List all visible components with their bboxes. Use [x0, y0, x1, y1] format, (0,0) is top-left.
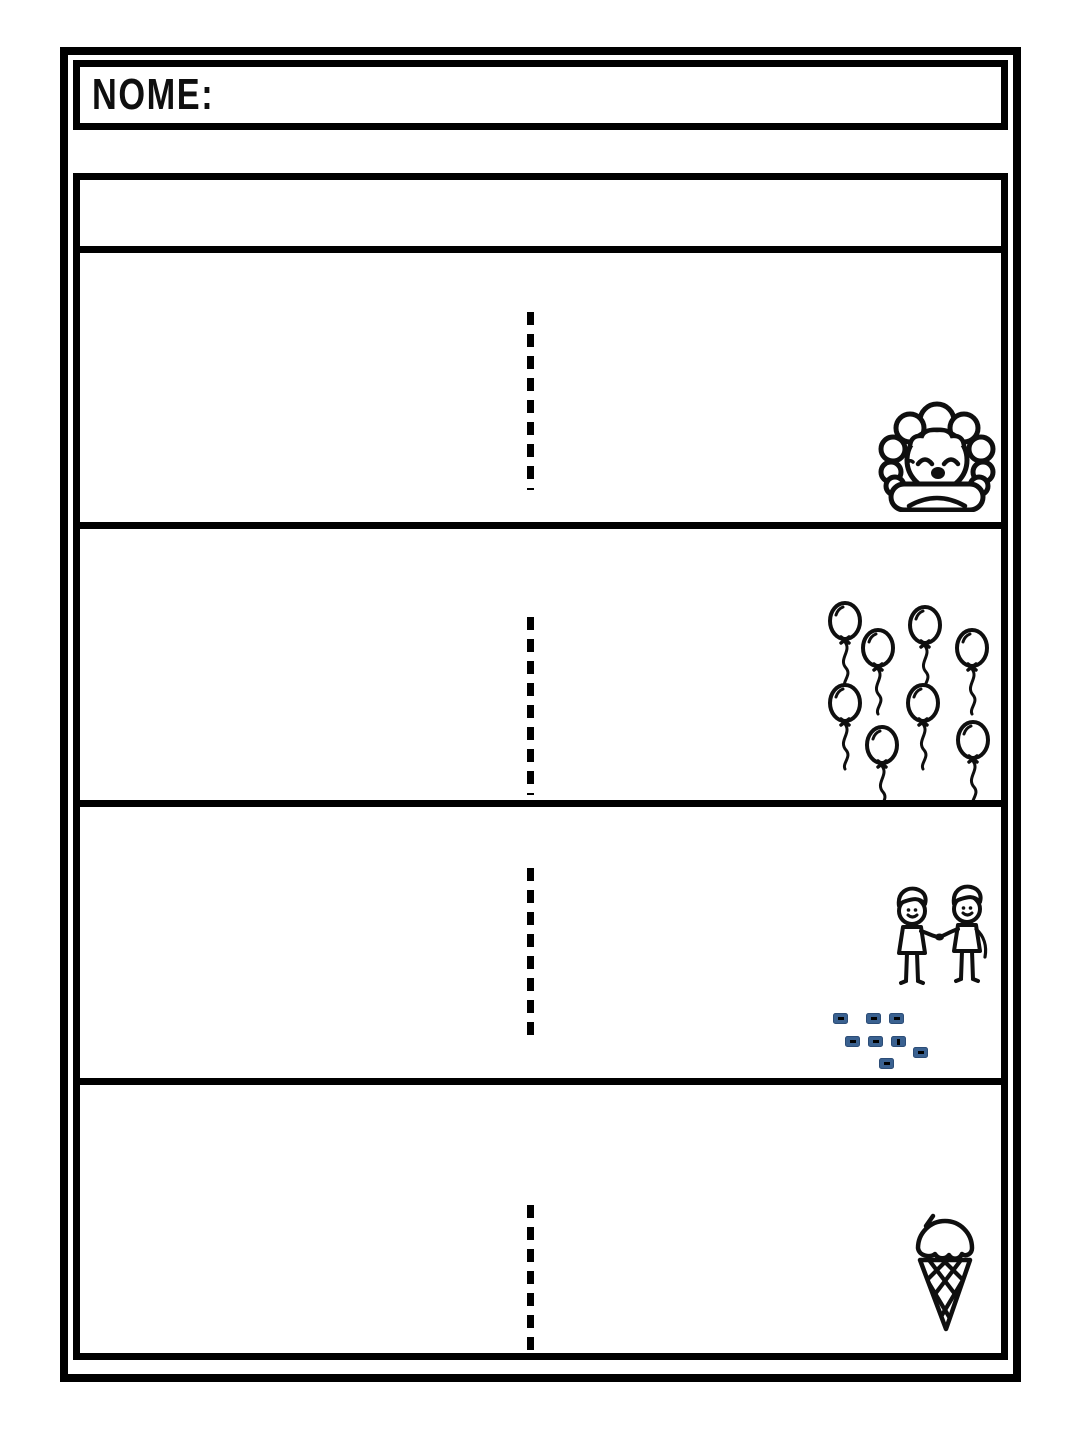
page-border-frame: NOME:	[60, 47, 1021, 1382]
exercise-row-balloons	[80, 522, 1001, 800]
name-field[interactable]: NOME:	[73, 60, 1008, 130]
blue-mark	[833, 1013, 848, 1024]
exercise-table	[73, 173, 1008, 1360]
worksheet-page: NOME:	[0, 0, 1080, 1440]
blue-mark	[845, 1036, 860, 1047]
dashed-guide-line	[527, 868, 534, 1043]
blue-mark	[889, 1013, 904, 1024]
blue-mark	[879, 1058, 894, 1069]
blue-mark	[866, 1013, 881, 1024]
instruction-row	[80, 180, 1001, 246]
ice-cream-cone-icon	[905, 1196, 985, 1338]
blue-mark	[891, 1036, 906, 1047]
dashed-guide-line	[527, 312, 534, 490]
children-shaking-hands-icon	[888, 884, 993, 1001]
dashed-guide-line	[527, 617, 534, 795]
blue-mark	[868, 1036, 883, 1047]
blue-mark	[913, 1047, 928, 1058]
exercise-row-handshake	[80, 800, 1001, 1078]
exercise-row-icecream	[80, 1078, 1001, 1353]
curly-haired-child-icon	[877, 400, 997, 512]
balloons-icon	[818, 598, 1003, 800]
dashed-guide-line	[527, 1205, 534, 1355]
name-label: NOME:	[92, 70, 214, 120]
exercise-row-child	[80, 246, 1001, 522]
